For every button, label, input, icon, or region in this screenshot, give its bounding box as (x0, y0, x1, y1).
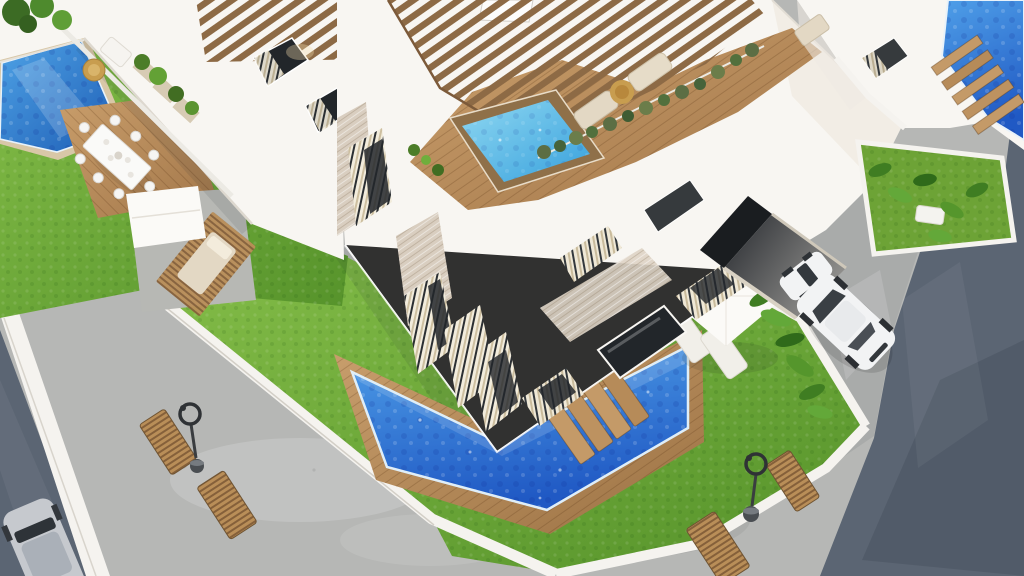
roof-planter (408, 144, 420, 156)
garden-lounger (915, 205, 945, 225)
render-canvas: Aerial 3D architectural rendering of mod… (0, 0, 1024, 576)
right-villa-planter-garden (858, 142, 1014, 254)
roof-planter (432, 164, 444, 176)
aerial-render (0, 0, 1024, 576)
roof-planter (421, 155, 431, 165)
